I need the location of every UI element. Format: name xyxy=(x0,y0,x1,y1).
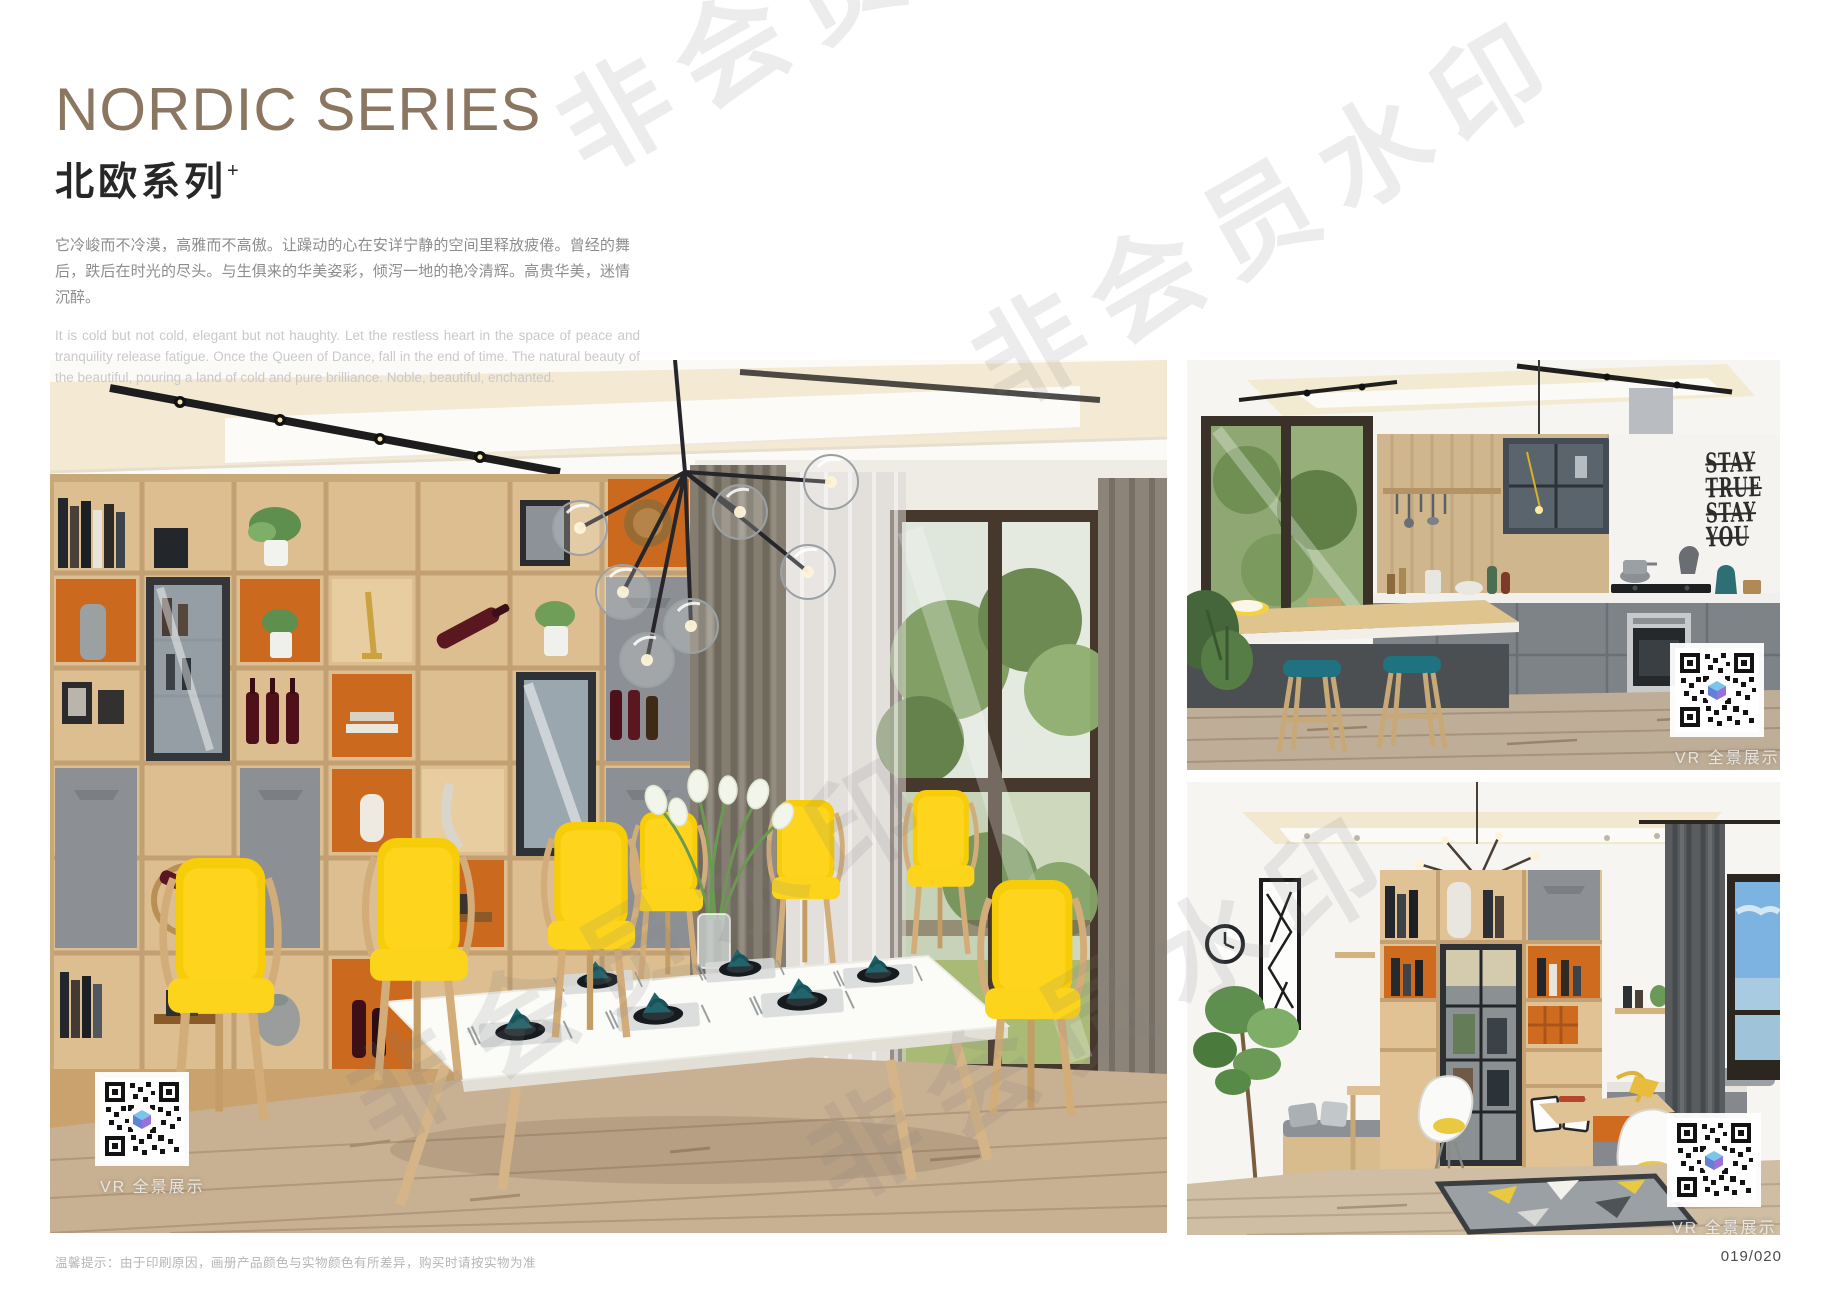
yellow-chair xyxy=(981,880,1084,1116)
yellow-chair xyxy=(632,812,706,980)
page-subtitle: 北欧系列+ xyxy=(55,151,695,207)
subtitle-text: 北欧系列 xyxy=(55,161,227,204)
vr-panorama-link[interactable]: VR 全景展示 xyxy=(1675,648,1780,768)
dining-room-photo: VR 全景展示 xyxy=(50,360,1167,1233)
qr-code[interactable] xyxy=(100,1077,184,1161)
qr-code[interactable] xyxy=(1672,1118,1756,1202)
page-number: 019/020 xyxy=(1582,1248,1782,1265)
glass-display-cabinet xyxy=(146,577,230,761)
dining-room-scene xyxy=(50,360,1167,1233)
kitchen-photo: STAY TRUE STAY YOU VR 全景展示 xyxy=(1187,360,1780,770)
vr-panorama-link[interactable]: VR 全景展示 xyxy=(100,1077,205,1197)
stay-true-stay-you-decal: STAY TRUE STAY YOU xyxy=(1705,451,1746,551)
description-english: It is cold but not cold, elegant but not… xyxy=(55,325,640,388)
vr-caption: VR 全景展示 xyxy=(1672,1214,1777,1235)
bookcase xyxy=(1380,870,1602,1170)
wall-clock xyxy=(1207,926,1243,962)
subtitle-superscript: + xyxy=(227,160,239,182)
abstract-art-frame xyxy=(1261,880,1299,1028)
qr-code[interactable] xyxy=(1675,648,1759,732)
vr-caption: VR 全景展示 xyxy=(1675,744,1780,768)
vr-caption: VR 全景展示 xyxy=(100,1173,205,1197)
page-title: NORDIC SERIES xyxy=(55,78,695,141)
vr-panorama-link[interactable]: VR 全景展示 xyxy=(1672,1118,1777,1235)
decal-line: YOU xyxy=(1706,526,1746,552)
study-room-photo: VR 全景展示 xyxy=(1187,782,1780,1235)
ceiling xyxy=(1242,812,1722,844)
yellow-chair xyxy=(544,822,638,1037)
geometric-rug xyxy=(1439,1176,1693,1232)
wine-bottles xyxy=(246,678,299,744)
header: NORDIC SERIES 北欧系列+ 它冷峻而不冷漠，高雅而不高傲。让躁动的心… xyxy=(55,78,695,388)
floating-shelf xyxy=(1335,952,1375,958)
sky-window xyxy=(1727,874,1780,1080)
catalog-page: NORDIC SERIES 北欧系列+ 它冷峻而不冷漠，高雅而不高傲。让躁动的心… xyxy=(0,0,1836,1307)
footer-disclaimer: 温馨提示：由于印刷原因，画册产品颜色与实物颜色有所差异，购买时请按实物为准 xyxy=(55,1252,536,1271)
description-chinese: 它冷峻而不冷漠，高雅而不高傲。让躁动的心在安详宁静的空间里释放疲倦。曾经的舞后，… xyxy=(55,233,630,311)
yellow-chair xyxy=(905,790,977,954)
upper-glass-cabinet xyxy=(1503,438,1609,534)
yellow-chair xyxy=(365,838,471,1080)
